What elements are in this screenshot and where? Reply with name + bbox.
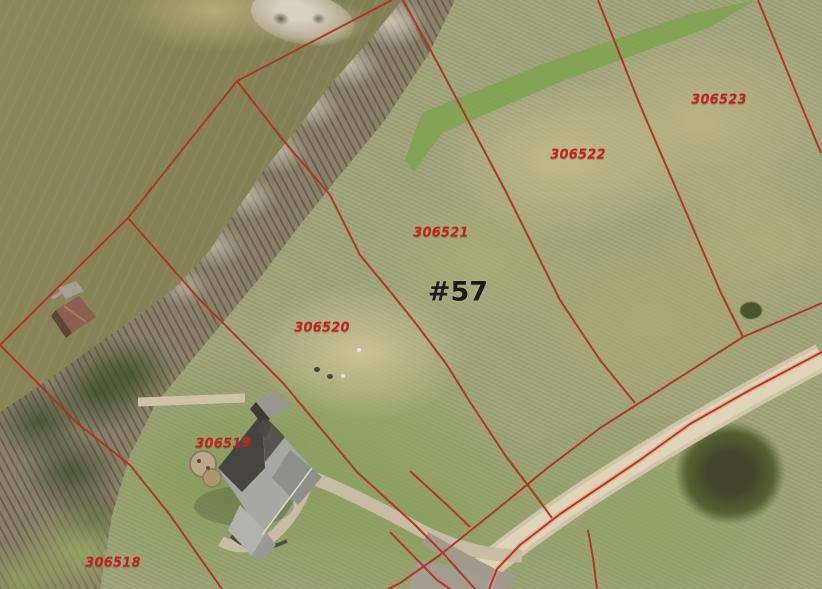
- parcel-label-306522: 306522: [550, 148, 605, 163]
- parcel-label-306519: 306519: [195, 437, 250, 452]
- boundary-lot57-306522: [403, 0, 635, 403]
- landscape-bed: [203, 469, 221, 487]
- boundary-spur: [588, 530, 597, 589]
- walkway: [138, 398, 245, 402]
- parcel-label-306518: 306518: [85, 556, 140, 571]
- lot-57-marker: #57: [428, 277, 488, 308]
- boundary-306522-306523: [598, 0, 743, 337]
- aerial-parcel-map[interactable]: 306523 306522 306521 #57 306520 306519 3…: [0, 0, 822, 589]
- parcel-label-306520: 306520: [294, 321, 349, 336]
- parcel-label-306521: 306521: [413, 226, 468, 241]
- bed-stone: [206, 466, 210, 470]
- parcel-label-306523: 306523: [691, 93, 746, 108]
- map-overlay: [0, 0, 822, 589]
- boundary-306518-306519: [0, 345, 222, 589]
- boundary-306523-east: [758, 0, 821, 153]
- bed-stone: [197, 459, 201, 463]
- boundary-segment: [410, 471, 470, 527]
